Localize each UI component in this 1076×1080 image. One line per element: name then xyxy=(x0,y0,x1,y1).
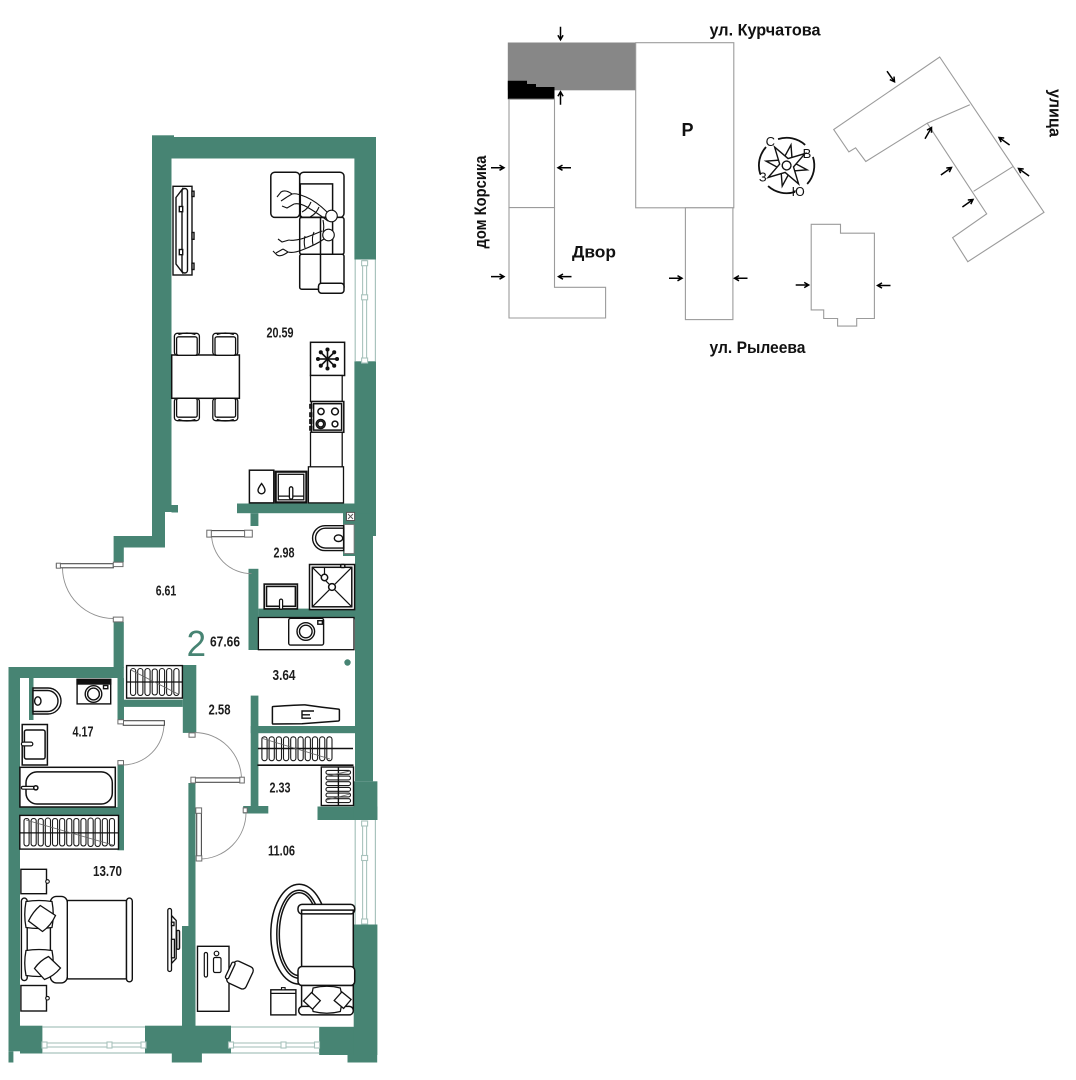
svg-text:11.06: 11.06 xyxy=(268,844,295,860)
svg-text:2.58: 2.58 xyxy=(209,703,231,719)
svg-text:дом Корсика: дом Корсика xyxy=(472,155,490,249)
svg-text:ул. Курчатова: ул. Курчатова xyxy=(710,22,822,40)
svg-text:ул. Рылеева: ул. Рылеева xyxy=(710,339,807,357)
svg-text:20.59: 20.59 xyxy=(267,326,294,342)
svg-text:2: 2 xyxy=(187,623,206,664)
svg-text:3.64: 3.64 xyxy=(273,668,296,684)
svg-text:13.70: 13.70 xyxy=(93,864,122,880)
svg-text:Р: Р xyxy=(681,120,693,140)
svg-text:4.17: 4.17 xyxy=(73,724,94,740)
svg-text:67.66: 67.66 xyxy=(210,634,240,650)
svg-text:З: З xyxy=(759,170,767,185)
svg-text:6.61: 6.61 xyxy=(156,584,177,600)
svg-text:С: С xyxy=(766,134,775,149)
svg-text:2.98: 2.98 xyxy=(274,546,295,562)
svg-text:2.33: 2.33 xyxy=(270,781,291,797)
svg-text:улица: улица xyxy=(1046,89,1064,138)
svg-text:В: В xyxy=(803,146,812,161)
svg-text:Ю: Ю xyxy=(792,184,805,199)
svg-text:Двор: Двор xyxy=(572,244,616,262)
